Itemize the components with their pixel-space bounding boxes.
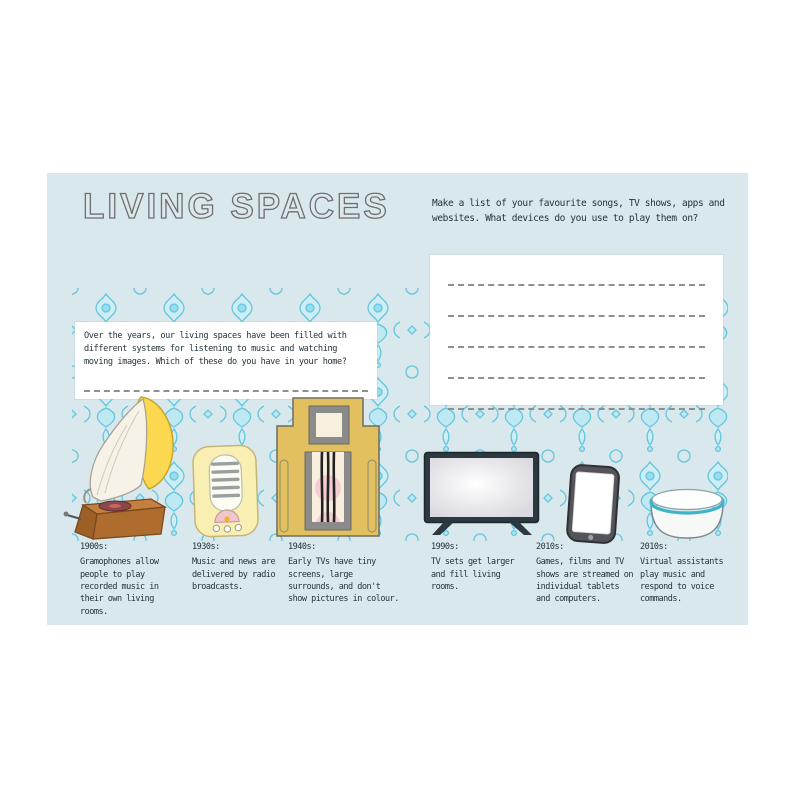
timeline-entry: 1940s: Early TVs have tiny screens, larg… <box>288 541 402 606</box>
timeline-caption: Early TVs have tiny screens, large surro… <box>288 556 402 605</box>
early-tv-icon <box>271 396 385 538</box>
book-page: LIVING SPACES Make a list of your favour… <box>47 173 748 625</box>
activity-prompt-line: websites. What devices do you use to pla… <box>432 212 748 227</box>
writing-line <box>448 286 705 317</box>
decade-label: 2010s: <box>640 541 736 553</box>
timeline-caption: Games, films and TV shows are streamed o… <box>536 556 636 605</box>
activity-book-spread: { "page": { "title": "LIVING SPACES", "b… <box>0 0 800 800</box>
timeline-entry: 2010s: Virtual assistants play music and… <box>640 541 736 606</box>
decade-label: 1940s: <box>288 541 402 553</box>
decade-label: 1990s: <box>431 541 531 553</box>
radio-icon <box>185 441 266 542</box>
timeline-entry: 1990s: TV sets get larger and fill livin… <box>431 541 531 593</box>
answer-box <box>430 255 723 405</box>
activity-prompt-line: Make a list of your favourite songs, TV … <box>432 197 748 212</box>
flat-tv-icon <box>423 451 541 537</box>
tablet-icon <box>553 462 633 549</box>
intro-line: different systems for listening to music… <box>84 343 368 356</box>
voice-assistant-icon <box>644 485 730 543</box>
timeline-caption: Gramophones allow people to play recorde… <box>80 556 180 618</box>
timeline-caption: Music and news are delivered by radio br… <box>192 556 287 593</box>
intro-box: Over the years, our living spaces have b… <box>75 322 377 399</box>
writing-line <box>448 255 705 286</box>
timeline-entry: 1900s: Gramophones allow people to play … <box>80 541 180 618</box>
writing-line <box>448 317 705 348</box>
activity-prompt: Make a list of your favourite songs, TV … <box>432 197 748 226</box>
intro-line: moving images. Which of these do you hav… <box>84 356 368 369</box>
writing-line <box>448 379 705 410</box>
page-title: LIVING SPACES <box>83 187 390 227</box>
intro-line: Over the years, our living spaces have b… <box>84 330 368 343</box>
timeline-caption: Virtual assistants play music and respon… <box>640 556 736 605</box>
gramophone-icon <box>61 389 185 541</box>
timeline-entry: 2010s: Games, films and TV shows are str… <box>536 541 636 606</box>
decade-label: 1930s: <box>192 541 287 553</box>
timeline-entry: 1930s: Music and news are delivered by r… <box>192 541 287 593</box>
timeline-caption: TV sets get larger and fill living rooms… <box>431 556 531 593</box>
writing-line <box>448 348 705 379</box>
decade-label: 1900s: <box>80 541 180 553</box>
decade-label: 2010s: <box>536 541 636 553</box>
